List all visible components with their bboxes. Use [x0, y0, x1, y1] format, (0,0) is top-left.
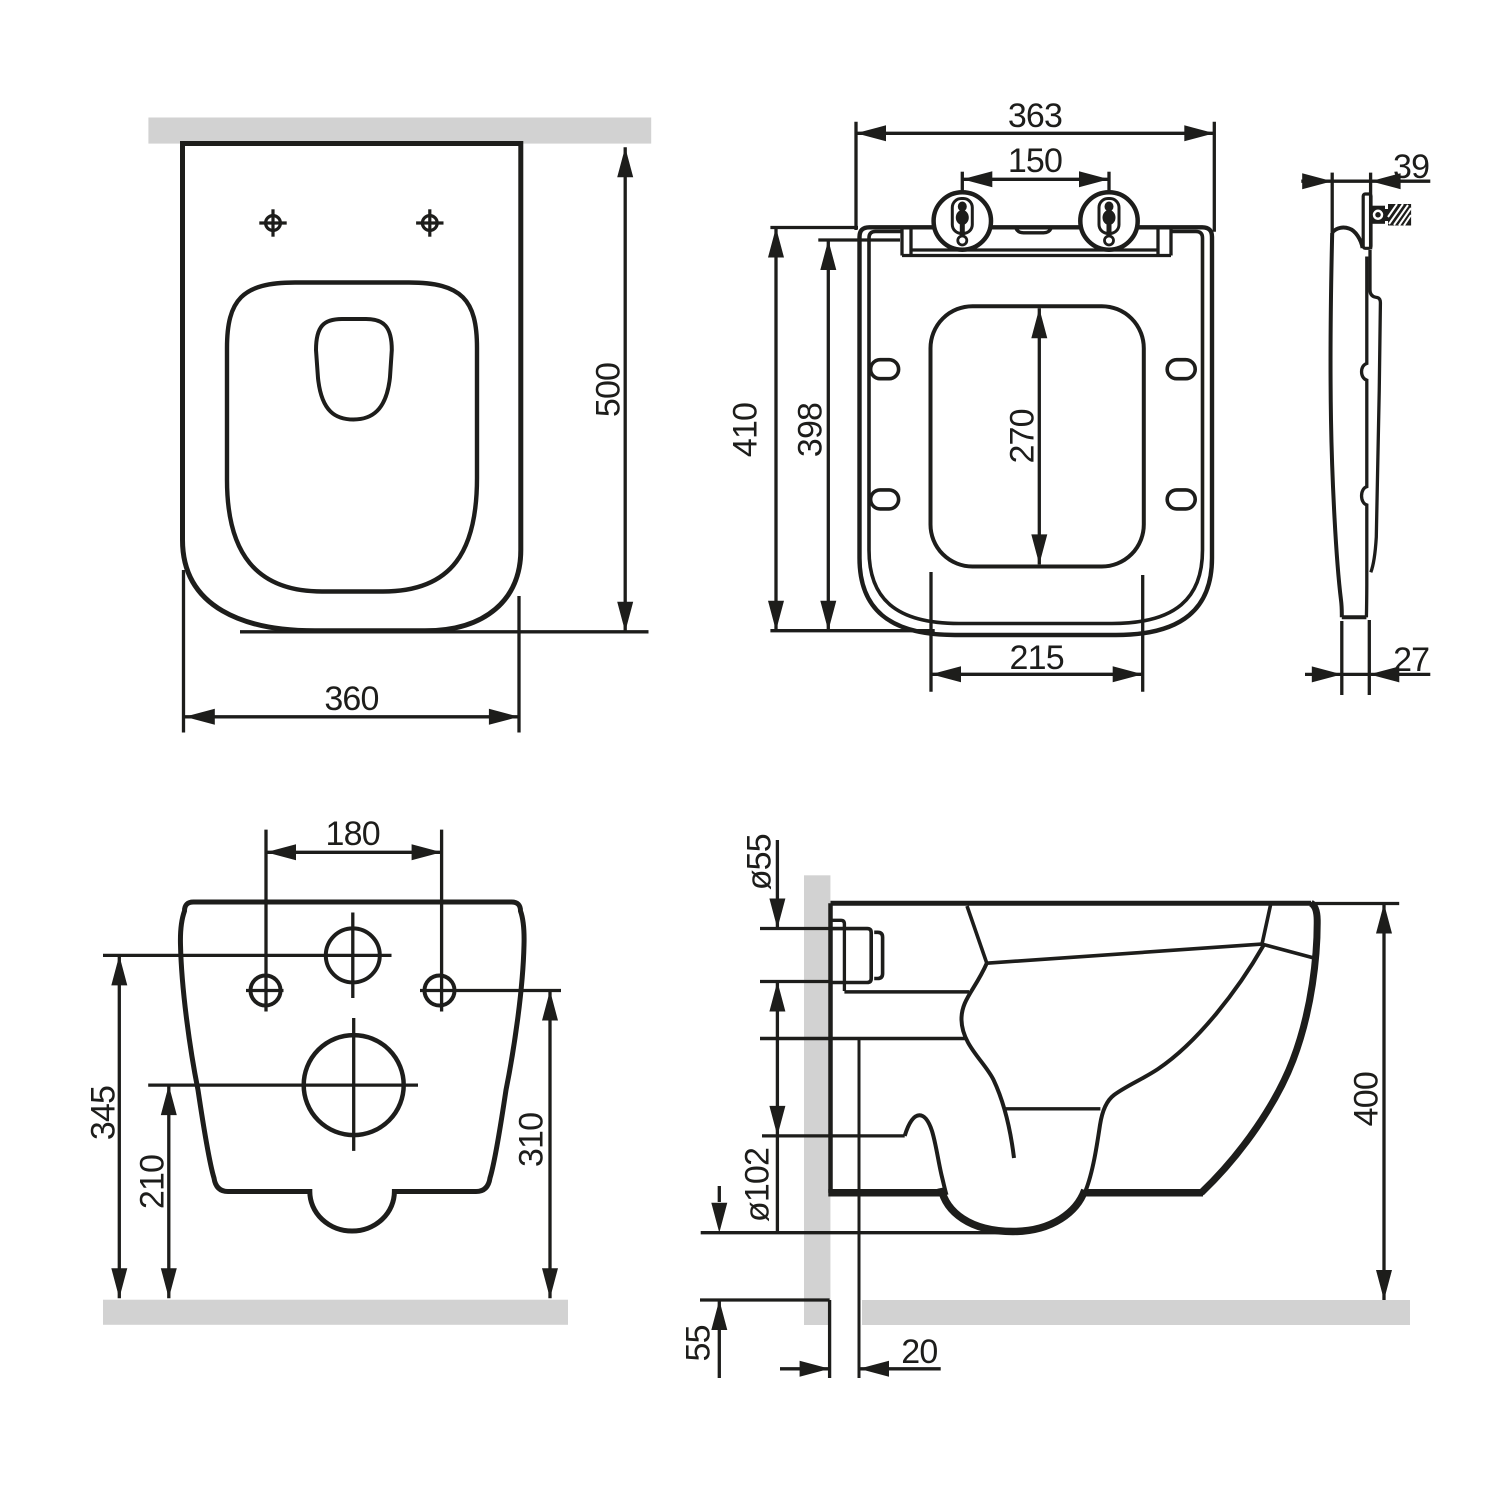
svg-text:210: 210 [134, 1155, 172, 1209]
svg-text:500: 500 [590, 363, 628, 417]
svg-text:20: 20 [901, 1333, 937, 1371]
svg-text:215: 215 [1010, 639, 1064, 677]
svg-text:398: 398 [792, 403, 830, 457]
svg-text:270: 270 [1004, 409, 1042, 463]
svg-text:400: 400 [1348, 1072, 1386, 1126]
svg-text:310: 310 [512, 1113, 550, 1167]
svg-text:345: 345 [85, 1086, 123, 1140]
svg-text:410: 410 [726, 403, 764, 457]
svg-text:360: 360 [324, 680, 378, 718]
svg-text:55: 55 [680, 1325, 718, 1361]
svg-text:ø102: ø102 [739, 1148, 777, 1222]
svg-text:150: 150 [1008, 142, 1062, 180]
svg-text:180: 180 [326, 815, 380, 853]
svg-text:ø55: ø55 [741, 834, 779, 890]
svg-text:363: 363 [1008, 97, 1062, 135]
svg-text:27: 27 [1393, 641, 1429, 679]
svg-text:39: 39 [1393, 148, 1429, 186]
